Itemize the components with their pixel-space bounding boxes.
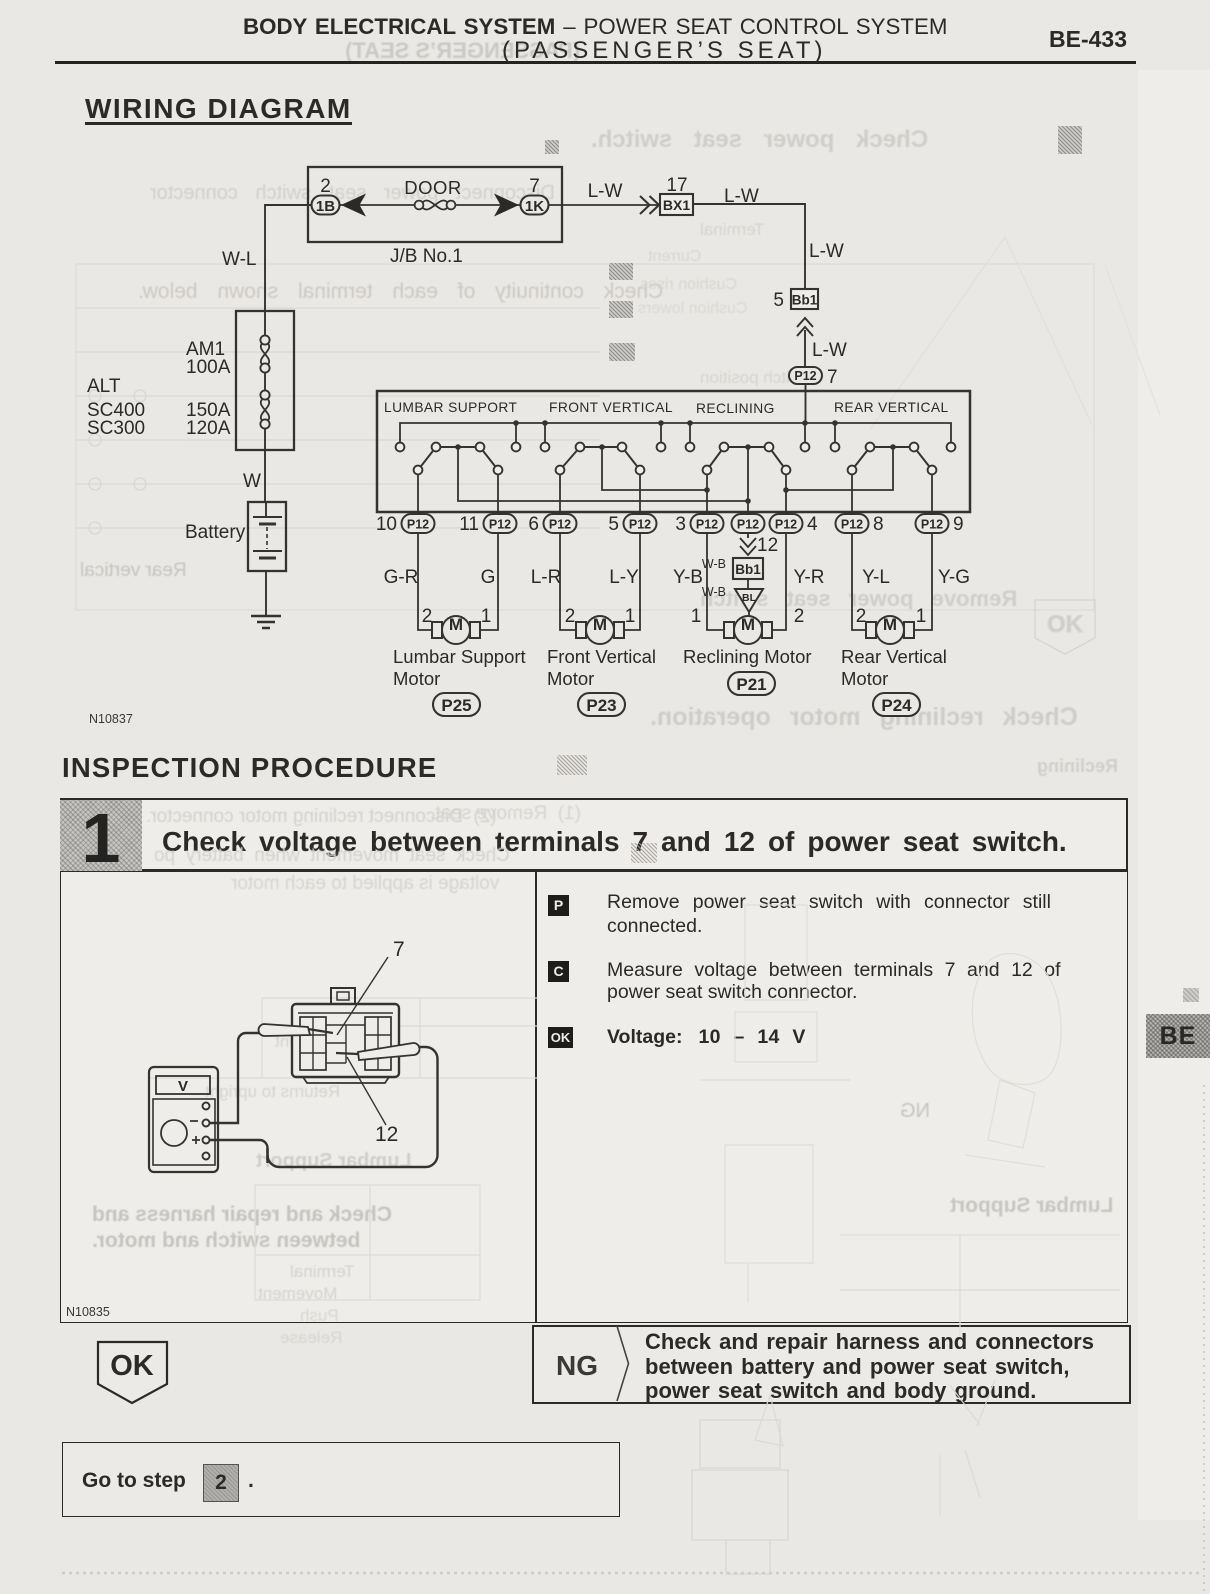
svg-text:7: 7: [393, 938, 405, 961]
svg-text:V: V: [178, 1078, 188, 1095]
svg-text:OK: OK: [110, 1350, 154, 1382]
svg-text:12: 12: [375, 1123, 398, 1146]
